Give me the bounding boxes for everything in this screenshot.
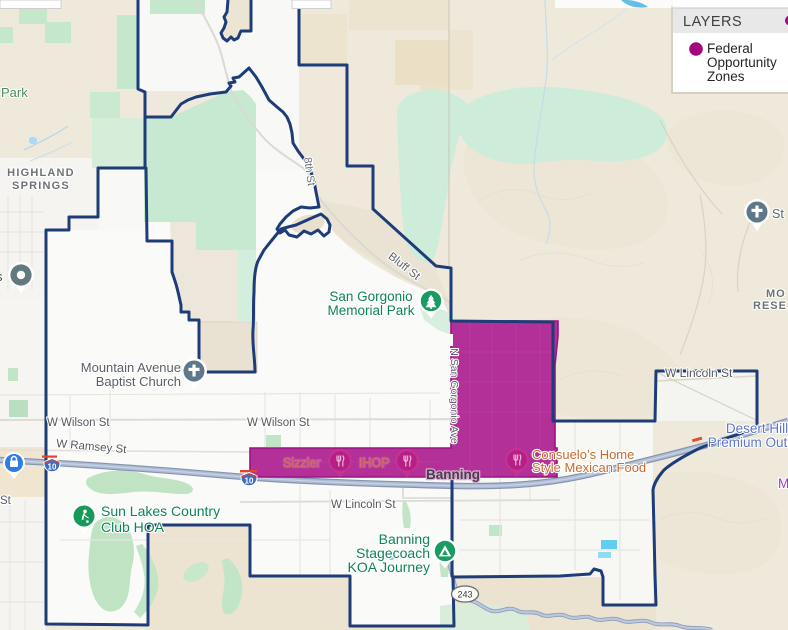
svg-text:Federal: Federal [707,41,753,56]
svg-text:10: 10 [245,477,254,486]
svg-text:Baptist Church: Baptist Church [96,374,181,389]
svg-text:MO: MO [766,288,786,300]
svg-text:Style Mexican Food: Style Mexican Food [532,460,646,475]
svg-text:RESE: RESE [753,300,787,312]
svg-text:St: St [0,495,12,507]
svg-text:Zones: Zones [707,69,745,84]
svg-text:Mountain Avenue: Mountain Avenue [81,360,181,375]
svg-text:10: 10 [48,463,57,472]
svg-text:Memorial Park: Memorial Park [327,303,414,318]
svg-text:Park: Park [1,85,28,100]
svg-text:W Lincoln St: W Lincoln St [665,366,733,380]
svg-text:Opportunity: Opportunity [707,55,777,70]
svg-text:LAYERS: LAYERS [683,14,742,30]
svg-text:IHOP: IHOP [359,456,390,470]
svg-text:N San Gorgonio Ave: N San Gorgonio Ave [448,348,460,444]
svg-text:W Lincoln St: W Lincoln St [331,499,396,511]
svg-text:HIGHLAND: HIGHLAND [7,167,75,179]
svg-text:Sun Lakes Country: Sun Lakes Country [101,503,220,519]
svg-text:Sizzler: Sizzler [283,456,321,470]
svg-text:243: 243 [457,590,472,600]
svg-text:St: St [772,207,784,221]
svg-text:Premium Outlets: Premium Outlets [708,435,788,450]
svg-text:Mo: Mo [778,476,788,491]
svg-text:W Wilson St: W Wilson St [247,417,310,429]
svg-text:W Wilson St: W Wilson St [47,417,110,429]
svg-text:SPRINGS: SPRINGS [12,180,70,192]
svg-text:Banning: Banning [426,467,480,482]
svg-text:KOA Journey: KOA Journey [348,559,431,575]
svg-text:Desert Hill: Desert Hill [726,421,788,436]
svg-text:San Gorgonio: San Gorgonio [329,289,412,304]
svg-text:Club HOA: Club HOA [101,519,165,535]
